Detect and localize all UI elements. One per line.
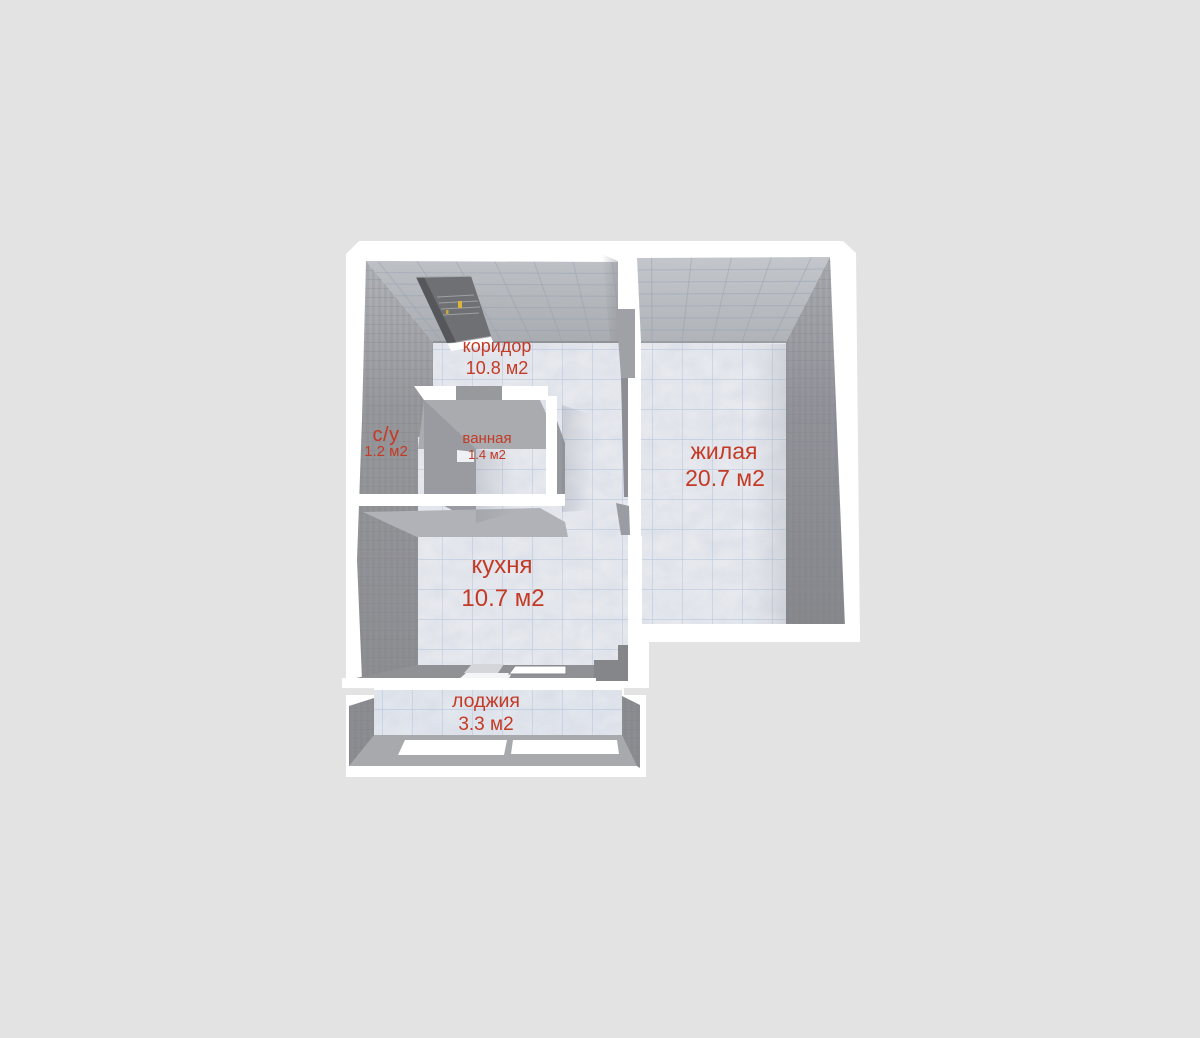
- svg-text:ванная: ванная: [462, 430, 511, 447]
- svg-text:1.4 м2: 1.4 м2: [468, 447, 506, 462]
- svg-text:20.7 м2: 20.7 м2: [685, 465, 765, 491]
- svg-text:3.3 м2: 3.3 м2: [458, 714, 513, 735]
- svg-text:кухня: кухня: [471, 552, 532, 579]
- svg-text:10.7 м2: 10.7 м2: [461, 585, 544, 612]
- svg-text:10.8 м2: 10.8 м2: [466, 358, 528, 378]
- svg-text:1.2 м2: 1.2 м2: [364, 443, 408, 460]
- svg-text:коридор: коридор: [463, 336, 532, 356]
- svg-text:жилая: жилая: [691, 438, 758, 464]
- svg-text:лоджия: лоджия: [452, 690, 520, 712]
